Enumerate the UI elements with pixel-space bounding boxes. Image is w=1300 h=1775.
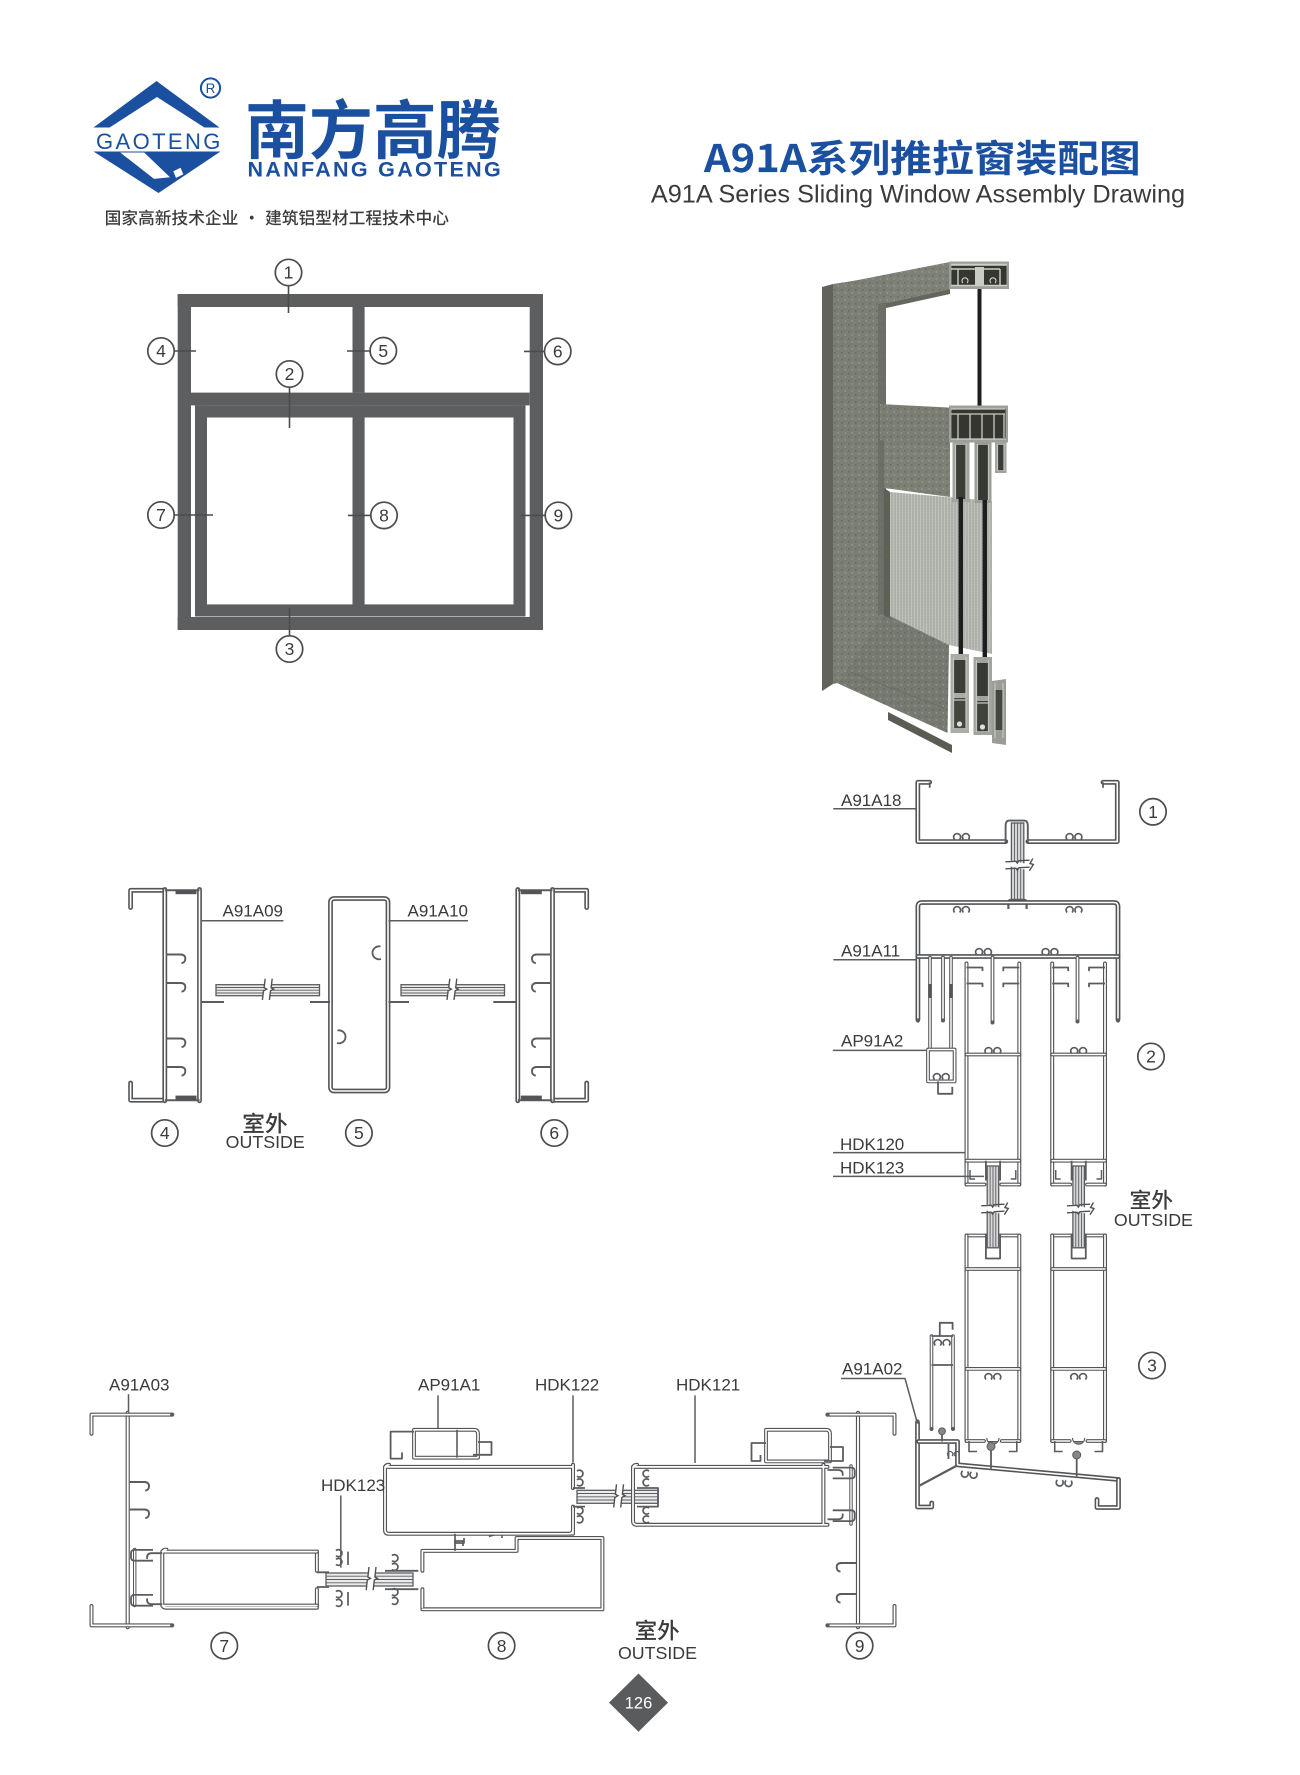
svg-text:AP91A1: AP91A1 (418, 1375, 480, 1394)
svg-text:HDK123: HDK123 (321, 1476, 385, 1495)
svg-text:6: 6 (549, 1123, 559, 1143)
svg-text:126: 126 (625, 1695, 653, 1713)
svg-text:5: 5 (354, 1123, 364, 1143)
svg-text:6: 6 (553, 342, 563, 362)
svg-text:AP91A2: AP91A2 (841, 1032, 903, 1051)
svg-text:A91A11: A91A11 (841, 942, 900, 961)
svg-text:9: 9 (855, 1636, 865, 1656)
svg-text:A91A10: A91A10 (408, 902, 469, 921)
svg-text:9: 9 (554, 506, 564, 526)
svg-text:A91A18: A91A18 (841, 791, 902, 810)
svg-text:OUTSIDE: OUTSIDE (226, 1132, 305, 1152)
svg-text:4: 4 (160, 1123, 170, 1143)
svg-text:OUTSIDE: OUTSIDE (618, 1643, 697, 1663)
svg-text:3: 3 (1147, 1356, 1157, 1376)
svg-text:HDK120: HDK120 (840, 1135, 904, 1154)
svg-text:1: 1 (1148, 802, 1158, 822)
svg-text:1: 1 (284, 263, 294, 283)
svg-text:2: 2 (1146, 1047, 1156, 1067)
svg-text:7: 7 (156, 505, 166, 525)
svg-text:R: R (206, 81, 216, 96)
svg-text:HDK122: HDK122 (535, 1375, 599, 1394)
svg-text:NANFANG GAOTENG: NANFANG GAOTENG (248, 158, 503, 182)
svg-text:A91A09: A91A09 (223, 902, 284, 921)
svg-text:4: 4 (156, 341, 166, 361)
svg-text:A91A02: A91A02 (842, 1360, 903, 1379)
svg-text:HDK121: HDK121 (676, 1375, 740, 1394)
svg-text:8: 8 (497, 1636, 507, 1656)
svg-text:3: 3 (285, 639, 295, 659)
svg-text:OUTSIDE: OUTSIDE (1114, 1210, 1193, 1230)
svg-text:5: 5 (378, 341, 388, 361)
svg-text:8: 8 (379, 506, 389, 526)
svg-text:HDK123: HDK123 (840, 1159, 904, 1178)
svg-text:2: 2 (285, 364, 295, 384)
svg-text:GAOTENG: GAOTENG (96, 129, 223, 154)
svg-text:A91A Series Sliding Window Ass: A91A Series Sliding Window Assembly Draw… (651, 181, 1185, 209)
svg-text:A91A03: A91A03 (109, 1375, 170, 1394)
svg-text:7: 7 (219, 1636, 229, 1656)
